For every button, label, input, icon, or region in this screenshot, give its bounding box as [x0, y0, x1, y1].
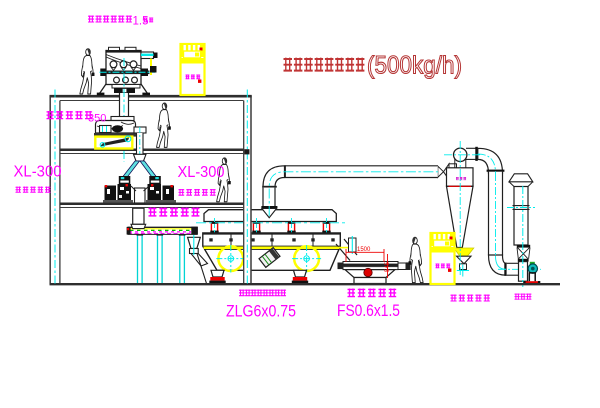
- svg-text:FS0.6x1.5: FS0.6x1.5: [337, 302, 400, 320]
- svg-text:(500kg/h): (500kg/h): [367, 52, 462, 80]
- svg-text:545: 545: [385, 261, 391, 272]
- svg-text:1500: 1500: [357, 247, 371, 253]
- svg-text:ZLG6x0.75: ZLG6x0.75: [226, 303, 296, 321]
- svg-text:XL-300: XL-300: [14, 164, 62, 181]
- svg-text:350: 350: [88, 113, 106, 125]
- svg-text:XL-300: XL-300: [178, 164, 225, 181]
